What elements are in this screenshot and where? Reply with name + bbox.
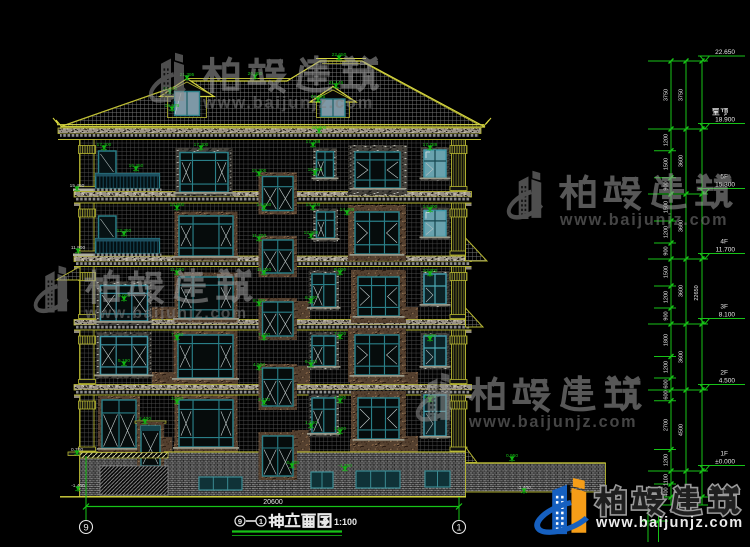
svg-text:3F: 3F bbox=[720, 304, 728, 311]
svg-text:±0.000: ±0.000 bbox=[715, 459, 735, 466]
svg-text:18.900: 18.900 bbox=[715, 117, 735, 124]
svg-text:600: 600 bbox=[664, 379, 670, 388]
svg-text:3750: 3750 bbox=[664, 89, 670, 101]
svg-text:1500: 1500 bbox=[664, 158, 670, 170]
svg-text:www.baijunjz.com: www.baijunjz.com bbox=[468, 413, 638, 431]
svg-text:www.baijunjz.com: www.baijunjz.com bbox=[595, 515, 744, 531]
svg-text:1800: 1800 bbox=[664, 334, 670, 346]
svg-text:11.700: 11.700 bbox=[716, 247, 736, 254]
svg-text:2F: 2F bbox=[720, 370, 728, 377]
svg-text:900: 900 bbox=[664, 246, 670, 255]
svg-text:1:100: 1:100 bbox=[334, 517, 357, 527]
svg-text:3600: 3600 bbox=[679, 351, 685, 363]
svg-text:22650: 22650 bbox=[694, 285, 700, 300]
svg-text:3600: 3600 bbox=[679, 155, 685, 167]
svg-text:20600: 20600 bbox=[263, 499, 283, 506]
svg-text:9: 9 bbox=[238, 517, 242, 526]
svg-text:1200: 1200 bbox=[664, 134, 670, 146]
svg-text:3750: 3750 bbox=[679, 89, 685, 101]
svg-text:1200: 1200 bbox=[664, 291, 670, 303]
svg-text:600: 600 bbox=[664, 390, 670, 399]
svg-text:900: 900 bbox=[664, 311, 670, 320]
svg-text:4500: 4500 bbox=[679, 424, 685, 436]
svg-text:4.500: 4.500 bbox=[719, 378, 736, 385]
svg-text:1200: 1200 bbox=[664, 361, 670, 373]
svg-text:9: 9 bbox=[83, 523, 88, 534]
svg-text:2700: 2700 bbox=[664, 419, 670, 431]
svg-text:22.650: 22.650 bbox=[715, 49, 735, 56]
svg-text:1500: 1500 bbox=[664, 266, 670, 278]
svg-text:4F: 4F bbox=[720, 239, 728, 246]
svg-text:www.baijunjz.com: www.baijunjz.com bbox=[559, 211, 729, 229]
svg-text:3600: 3600 bbox=[679, 285, 685, 297]
svg-text:www.baijunjz.com: www.baijunjz.com bbox=[202, 94, 374, 112]
svg-text:1F: 1F bbox=[720, 451, 728, 458]
svg-text:1100: 1100 bbox=[664, 474, 670, 486]
svg-text:8.100: 8.100 bbox=[719, 312, 736, 319]
svg-text:www.baijunjz.com: www.baijunjz.com bbox=[84, 305, 248, 322]
svg-text:1: 1 bbox=[259, 517, 263, 526]
svg-text:1200: 1200 bbox=[664, 454, 670, 466]
svg-text:1: 1 bbox=[456, 523, 461, 534]
svg-text:400: 400 bbox=[664, 487, 670, 496]
